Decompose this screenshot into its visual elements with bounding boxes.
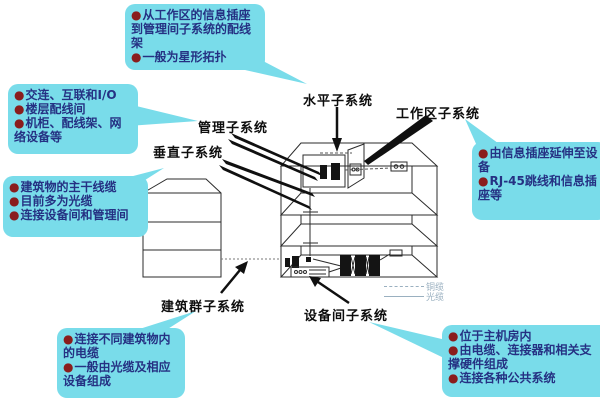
callout-item-text: 目前多为光缆 xyxy=(20,194,92,208)
label-equipment-subsystem: 设备间子系统 xyxy=(304,305,388,324)
fiber-cable-line-icon xyxy=(384,296,424,297)
copper-cable-line-icon xyxy=(384,286,424,287)
callout-item: ●交连、互联和I/O xyxy=(14,88,132,102)
callout-item: ●楼层配线间 xyxy=(14,102,132,116)
label-management-subsystem: 管理子系统 xyxy=(198,117,268,136)
callout-item: ●连接设备间和管理间 xyxy=(9,208,142,222)
bullet-icon: ● xyxy=(63,332,73,346)
bullet-icon: ● xyxy=(63,360,73,374)
device-icon xyxy=(292,256,299,268)
rack-icon xyxy=(355,255,366,276)
callout-item-text: 连接不同建筑物内的电缆 xyxy=(63,332,171,360)
callout-item-text: 连接各种公共系统 xyxy=(459,371,555,385)
bullet-icon: ● xyxy=(9,180,19,194)
legend-fiber-row: 光缆 xyxy=(384,292,444,301)
callout-item-text: 交连、互联和I/O xyxy=(25,88,116,102)
callout-item-text: 由电缆、连接器和相关支撑硬件组成 xyxy=(448,343,592,371)
arrow-campus-subsystem xyxy=(221,261,248,293)
left-building xyxy=(143,179,221,277)
structured-cabling-diagram: ●从工作区的信息插座到管理间子系统的配线架●一般为星形拓扑 ●交连、互联和I/O… xyxy=(0,0,600,400)
callout-item: ●目前多为光缆 xyxy=(9,194,142,208)
callout-tail-equipment xyxy=(369,322,446,359)
legend-fiber-label: 光缆 xyxy=(426,290,444,303)
callout-item: ●由信息插座延伸至设备 xyxy=(478,146,600,174)
callout-workarea-note: ●由信息插座延伸至设备●RJ-45跳线和信息插座等 xyxy=(472,142,600,220)
callout-item-text: 一般由光缆及相应设备组成 xyxy=(63,360,171,388)
callout-item: ●位于主机房内 xyxy=(448,329,600,343)
callout-equipment-note: ●位于主机房内●由电缆、连接器和相关支撑硬件组成●连接各种公共系统 xyxy=(442,325,600,397)
arrow-equipment-subsystem xyxy=(309,276,349,303)
callout-tail-management xyxy=(128,104,198,126)
bullet-icon: ● xyxy=(478,174,488,188)
callout-item-text: 连接设备间和管理间 xyxy=(20,208,128,222)
device-icon xyxy=(285,258,290,267)
callout-item: ●建筑物的主干线缆 xyxy=(9,180,142,194)
callout-item: ●由电缆、连接器和相关支撑硬件组成 xyxy=(448,343,600,371)
rack-icon xyxy=(320,165,327,179)
label-horizontal-subsystem: 水平子系统 xyxy=(303,90,373,109)
bullet-icon: ● xyxy=(448,343,458,357)
device-icon xyxy=(306,257,311,262)
callout-campus-note: ●连接不同建筑物内的电缆●一般由光缆及相应设备组成 xyxy=(57,328,185,398)
callout-item-text: 楼层配线间 xyxy=(25,102,85,116)
callout-horizontal-note: ●从工作区的信息插座到管理间子系统的配线架●一般为星形拓扑 xyxy=(125,4,265,70)
bullet-icon: ● xyxy=(448,329,458,343)
callout-item: ●从工作区的信息插座到管理间子系统的配线架 xyxy=(131,8,259,50)
label-vertical-subsystem: 垂直子系统 xyxy=(153,142,223,161)
label-campus-subsystem: 建筑群子系统 xyxy=(161,296,245,315)
bullet-icon: ● xyxy=(478,146,488,160)
callout-item-text: 由信息插座延伸至设备 xyxy=(478,146,598,174)
rack-icon xyxy=(331,163,340,180)
bullet-icon: ● xyxy=(131,50,141,64)
callout-item: ●RJ-45跳线和信息插座等 xyxy=(478,174,600,202)
callout-item: ●连接不同建筑物内的电缆 xyxy=(63,332,179,360)
bullet-icon: ● xyxy=(9,194,19,208)
rack-icon xyxy=(369,255,380,276)
callout-item: ●一般由光缆及相应设备组成 xyxy=(63,360,179,388)
cable-legend: 铜缆 光缆 xyxy=(384,282,444,302)
bullet-icon: ● xyxy=(14,116,24,130)
bullet-icon: ● xyxy=(14,88,24,102)
callout-item: ●一般为星形拓扑 xyxy=(131,50,259,64)
bullet-icon: ● xyxy=(448,371,458,385)
bullet-icon: ● xyxy=(131,8,141,22)
callout-item-text: 建筑物的主干线缆 xyxy=(20,180,116,194)
bullet-icon: ● xyxy=(9,208,19,222)
bullet-icon: ● xyxy=(14,102,24,116)
label-workarea-subsystem: 工作区子系统 xyxy=(396,103,480,122)
callout-item-text: RJ-45跳线和信息插座等 xyxy=(478,174,597,202)
rack-icon xyxy=(340,255,351,276)
callout-item: ●机柜、配线架、网络设备等 xyxy=(14,116,132,144)
callout-item-text: 机柜、配线架、网络设备等 xyxy=(14,116,122,144)
callout-management-note: ●交连、互联和I/O●楼层配线间●机柜、配线架、网络设备等 xyxy=(8,84,138,154)
callout-item-text: 一般为星形拓扑 xyxy=(142,50,226,64)
callout-vertical-note: ●建筑物的主干线缆●目前多为光缆●连接设备间和管理间 xyxy=(3,176,148,237)
callout-item: ●连接各种公共系统 xyxy=(448,371,600,385)
callout-item-text: 位于主机房内 xyxy=(459,329,531,343)
callout-item-text: 从工作区的信息插座到管理间子系统的配线架 xyxy=(131,8,251,50)
